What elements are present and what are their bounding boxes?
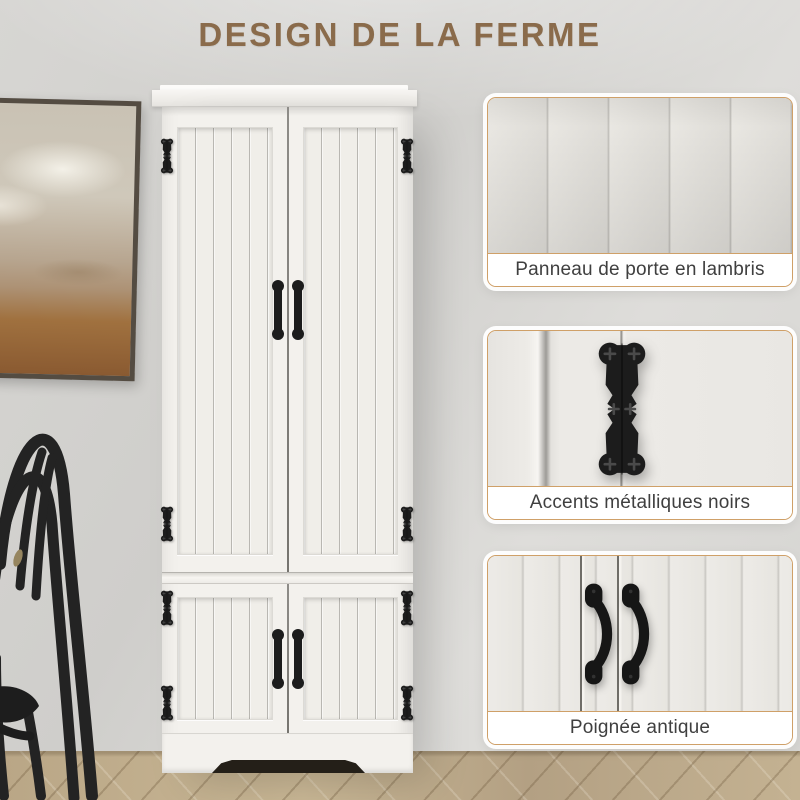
- cabinet-middle-rail: [162, 572, 413, 584]
- feature-caption: Panneau de porte en lambris: [488, 253, 792, 286]
- cabinet-crown-molding: [152, 90, 417, 107]
- product-feature-scene: DESIGN DE LA FERME: [0, 0, 800, 800]
- feature-caption: Poignée antique: [488, 711, 792, 744]
- beadboard-panel: [303, 127, 399, 555]
- hinge-icon: [397, 685, 417, 721]
- hinge-icon: [157, 506, 177, 542]
- cabinet-upper-doors: [162, 107, 413, 572]
- feature-card-antique-handle: Poignée antique: [487, 555, 793, 745]
- lower-right-handle: [294, 634, 302, 684]
- upper-right-handle: [294, 285, 302, 335]
- hinge-icon: [397, 590, 417, 626]
- wall-art-painting: [0, 97, 141, 382]
- feature-card-paneled-door: Panneau de porte en lambris: [487, 97, 793, 287]
- black-bentwood-chair: [0, 406, 114, 800]
- upper-left-door: [162, 107, 288, 572]
- hinge-icon: [397, 138, 417, 174]
- handle-icon: [582, 574, 618, 694]
- beadboard-panel: [177, 597, 273, 720]
- upper-right-door: [288, 107, 414, 572]
- cabinet-body: [162, 107, 413, 773]
- beadboard-panel: [303, 597, 399, 720]
- hinge-icon: [596, 340, 648, 478]
- hinge-icon: [397, 506, 417, 542]
- hinge-icon: [157, 685, 177, 721]
- door-gap: [287, 107, 289, 572]
- door-gap: [287, 584, 289, 733]
- feature-caption: Accents métalliques noirs: [488, 486, 792, 519]
- handle-icon: [619, 574, 655, 694]
- paneled-door-swatch: [488, 98, 792, 255]
- upper-left-handle: [274, 285, 282, 335]
- lower-left-door: [162, 584, 288, 733]
- cabinet-base-plinth: [162, 733, 413, 773]
- feature-card-black-hinge: Accents métalliques noirs: [487, 330, 793, 520]
- cabinet-lower-doors: [162, 584, 413, 733]
- lower-right-door: [288, 584, 414, 733]
- antique-handle-swatch: [488, 556, 792, 713]
- black-hinge-swatch: [488, 331, 792, 488]
- beadboard-panel: [177, 127, 273, 555]
- farmhouse-cabinet: [148, 85, 420, 773]
- hinge-icon: [157, 138, 177, 174]
- hinge-icon: [157, 590, 177, 626]
- base-arch-cutout: [212, 760, 365, 773]
- lower-left-handle: [274, 634, 282, 684]
- page-title: DESIGN DE LA FERME: [0, 16, 800, 54]
